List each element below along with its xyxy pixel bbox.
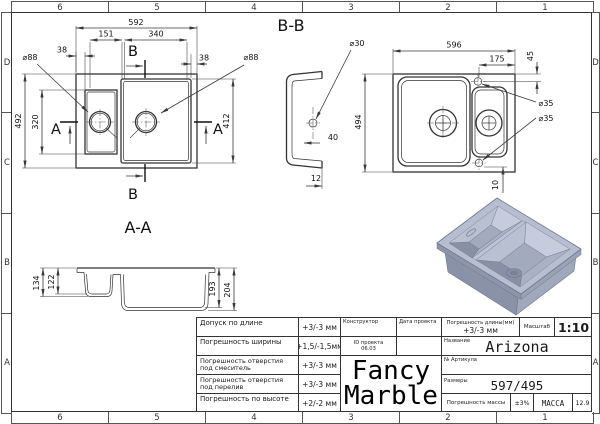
length-tolerance-value: +3/-3 мм	[463, 326, 498, 335]
section-mark-b-bottom: B	[128, 187, 138, 203]
tolerance-label: Погрешность по высоте	[197, 394, 298, 404]
dim-175: 175	[489, 55, 504, 64]
section-mark-a-right: A	[213, 122, 223, 138]
scale-value-cell: 1:10	[555, 318, 592, 337]
mass-tolerance-value-cell: ±3%	[511, 394, 534, 412]
dimensions-value: 597/495	[442, 378, 592, 393]
article-label: № Артикула	[442, 356, 592, 363]
sink-3d-render	[437, 198, 581, 315]
dim-151: 151	[98, 30, 113, 39]
mass-tolerance-value: ±3%	[511, 394, 533, 412]
mass-tolerance-label: Погрешность массы	[442, 394, 510, 412]
tolerance-row-value: +3/-3 мм	[299, 356, 341, 375]
dim-diam35-top: ⌀35	[539, 99, 554, 108]
section-aa-view: A-A 134 122 193 204	[32, 218, 237, 311]
tolerance-row-label: Погрешность отверстия под смеситель	[197, 356, 299, 375]
product-name: Arizona	[442, 338, 592, 356]
dim-122: 122	[47, 274, 56, 289]
dim-38-left: 38	[57, 46, 67, 55]
drawing-sheet: 6 5 4 3 2 1 6 5 4 3 2 1 D C B A D C B A	[0, 0, 600, 424]
dim-596: 596	[446, 41, 461, 50]
tolerance-row-value: +3/-3 мм	[299, 318, 341, 337]
dim-diam88-right: ⌀88	[244, 53, 259, 62]
section-mark-b-top: B	[128, 44, 138, 60]
dim-45: 45	[526, 51, 535, 61]
length-tolerance-cell: Погрешность длины(мм) +3/-3 мм	[442, 318, 520, 337]
tolerance-row-value: +2/-2 мм	[299, 394, 341, 412]
scale-value: 1:10	[555, 318, 592, 336]
dim-diam30: ⌀30	[350, 39, 365, 48]
tolerance-value: +3/-3 мм	[299, 318, 340, 336]
tolerance-row-label: Погрешность по высоте	[197, 394, 299, 412]
project-id-date: 06.03	[361, 346, 376, 352]
render-drain-hole	[510, 271, 518, 276]
tolerance-row-value: +3/-3 мм	[299, 375, 341, 394]
dim-412: 412	[222, 113, 231, 128]
mass-label: МАССА	[534, 394, 572, 412]
mass-value: 12.9	[573, 394, 592, 412]
dim-592: 592	[128, 18, 143, 27]
constructor-cell: Конструктор	[341, 318, 397, 337]
constructor-label: Конструктор	[341, 318, 396, 325]
mass-label-cell: МАССА	[534, 394, 573, 412]
logo-cell: Fancy Marble	[341, 356, 442, 412]
tolerance-row-label: Погрешность отверстия под перелив	[197, 375, 299, 394]
project-id-cell: ID проекта 06.03	[341, 337, 397, 356]
dim-204: 204	[223, 282, 232, 297]
dim-10: 10	[491, 180, 500, 190]
section-aa-title: A-A	[125, 218, 152, 237]
tolerance-value: +2/-2 мм	[299, 394, 340, 412]
dim-193: 193	[208, 281, 217, 296]
section-bb-title: B-B	[277, 16, 304, 35]
tolerance-row-label: Погрешность ширины	[197, 337, 299, 356]
project-date-label: Дата проекта	[397, 318, 441, 325]
dim-340: 340	[148, 30, 163, 39]
tolerance-label: Допуск по длине	[197, 318, 298, 328]
scale-label-cell: Масштаб	[520, 318, 555, 337]
dim-diam88-left: ⌀88	[23, 53, 38, 62]
fancy-marble-logo: Fancy Marble	[341, 356, 441, 412]
article-cell: № Артикула	[442, 356, 592, 375]
mass-value-cell: 12.9	[573, 394, 592, 412]
dim-492: 492	[14, 113, 23, 128]
dim-494: 494	[354, 114, 363, 129]
tolerance-value: +1,5/-1,5мм	[299, 337, 340, 355]
scale-label: Масштаб	[520, 318, 554, 336]
tolerance-row-value: +1,5/-1,5мм	[299, 337, 341, 356]
dim-12: 12	[311, 174, 321, 183]
product-name-cell: Название Arizona	[442, 337, 592, 356]
section-bb-view: B-B ⌀30 40 12	[277, 16, 553, 193]
logo-line2: Marble	[344, 384, 438, 409]
top-view: 592 151 340 38 38 ⌀88 ⌀88	[14, 18, 259, 203]
dim-diam35-bottom: ⌀35	[539, 114, 554, 123]
dim-38-right: 38	[199, 54, 209, 63]
dim-320: 320	[31, 114, 40, 129]
tolerance-row-label: Допуск по длине	[197, 318, 299, 337]
tolerance-label: Погрешность отверстия под перелив	[197, 375, 298, 391]
dimensions-cell: Размеры 597/495	[442, 375, 592, 394]
project-date-cell: Дата проекта	[397, 318, 442, 337]
mass-tolerance-label-cell: Погрешность массы	[442, 394, 511, 412]
tolerance-value: +3/-3 мм	[299, 375, 340, 393]
title-block: Допуск по длине +3/-3 мм Погрешность шир…	[196, 317, 592, 412]
section-mark-a-left: A	[51, 122, 61, 138]
tolerance-label: Погрешность ширины	[197, 337, 298, 347]
empty-cell	[397, 337, 442, 356]
dim-134: 134	[32, 275, 41, 290]
dim-40: 40	[328, 133, 338, 142]
tolerance-label: Погрешность отверстия под смеситель	[197, 356, 298, 372]
tolerance-value: +3/-3 мм	[299, 356, 340, 374]
